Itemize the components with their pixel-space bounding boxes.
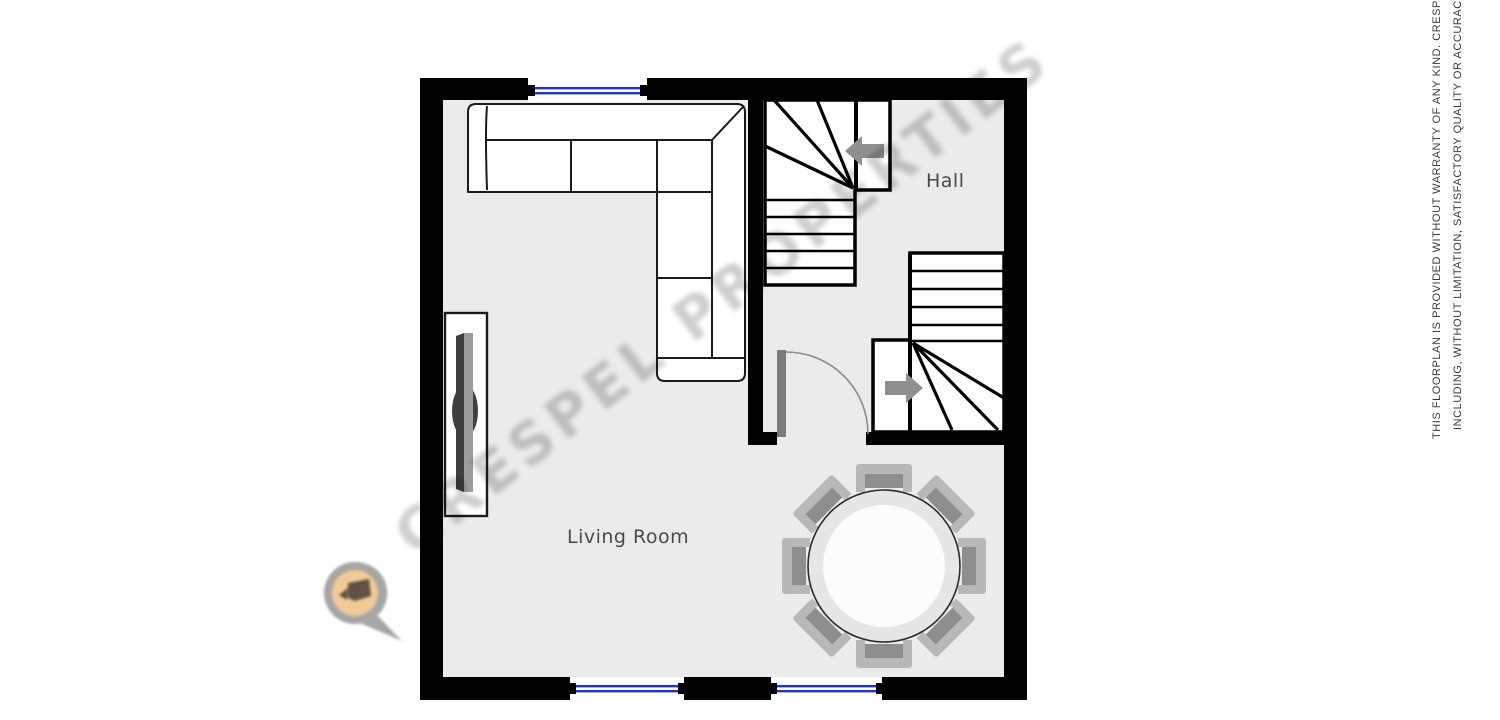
floorplan-canvas: Living Room Hall CRESPEL PROPERTIES THIS… — [0, 0, 1500, 720]
logo-pin-icon — [324, 562, 402, 641]
hall-label: Hall — [926, 170, 965, 192]
agency-logo — [0, 0, 1500, 720]
living-room-label: Living Room — [567, 526, 689, 548]
disclaimer-line-2: INCLUDING, WITHOUT LIMITATION, SATISFACT… — [1452, 0, 1464, 430]
disclaimer-line-1: THIS FLOORPLAN IS PROVIDED WITHOUT WARRA… — [1431, 0, 1443, 439]
